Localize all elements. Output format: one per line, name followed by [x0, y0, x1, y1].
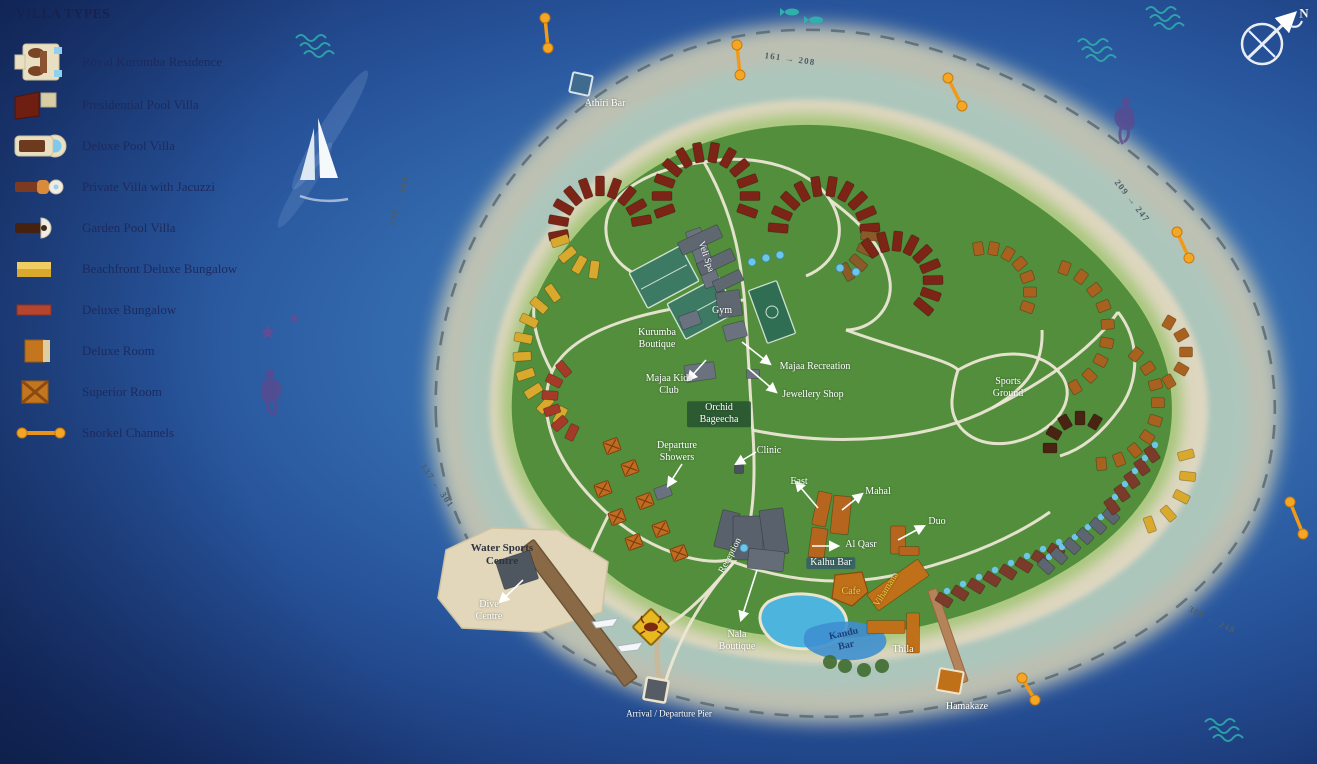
legend-item-label: Deluxe Room — [82, 343, 155, 359]
legend-item-label: Royal Kurumba Residence — [82, 54, 222, 70]
deluxe-room-icon — [10, 332, 72, 370]
legend-item-garden-pool-villa: Garden Pool Villa — [10, 208, 176, 248]
legend-item-deluxe-bungalow: Deluxe Bungalow — [10, 290, 176, 330]
legend-item-label: Deluxe Pool Villa — [82, 138, 175, 154]
resort-map: VILLA TYPES Royal Kurumba Residence — [0, 0, 1317, 764]
legend-item-label: Snorkel Channels — [82, 425, 174, 441]
royal-kurumba-residence-icon — [10, 42, 72, 82]
superior-room-icon — [10, 373, 72, 411]
snorkel-channels-icon — [10, 414, 72, 452]
legend-item-presidential-pool-villa: Presidential Pool Villa — [10, 85, 199, 125]
deluxe-pool-villa-icon — [10, 127, 72, 165]
legend-item-label: Superior Room — [82, 384, 162, 400]
legend-item-label: Presidential Pool Villa — [82, 97, 199, 113]
legend-item-private-villa-with-jacuzzi: Private Villa with Jacuzzi — [10, 167, 215, 207]
legend-item-label: Beachfront Deluxe Bungalow — [82, 261, 237, 277]
legend-item-snorkel-channels: Snorkel Channels — [10, 413, 174, 453]
garden-pool-villa-icon — [10, 209, 72, 247]
legend-item-label: Deluxe Bungalow — [82, 302, 176, 318]
legend-item-deluxe-pool-villa: Deluxe Pool Villa — [10, 126, 175, 166]
legend-item-deluxe-room: Deluxe Room — [10, 331, 155, 371]
legend-item-label: Private Villa with Jacuzzi — [82, 179, 215, 195]
presidential-pool-villa-icon — [10, 88, 72, 122]
legend-item-royal-kurumba-residence: Royal Kurumba Residence — [10, 42, 222, 82]
beachfront-deluxe-bungalow-icon — [10, 250, 72, 288]
legend-item-label: Garden Pool Villa — [82, 220, 176, 236]
deluxe-bungalow-icon — [10, 291, 72, 329]
legend-item-superior-room: Superior Room — [10, 372, 162, 412]
legend-title: VILLA TYPES — [16, 6, 110, 22]
legend-item-beachfront-deluxe-bungalow: Beachfront Deluxe Bungalow — [10, 249, 237, 289]
private-villa-with-jacuzzi-icon — [10, 168, 72, 206]
